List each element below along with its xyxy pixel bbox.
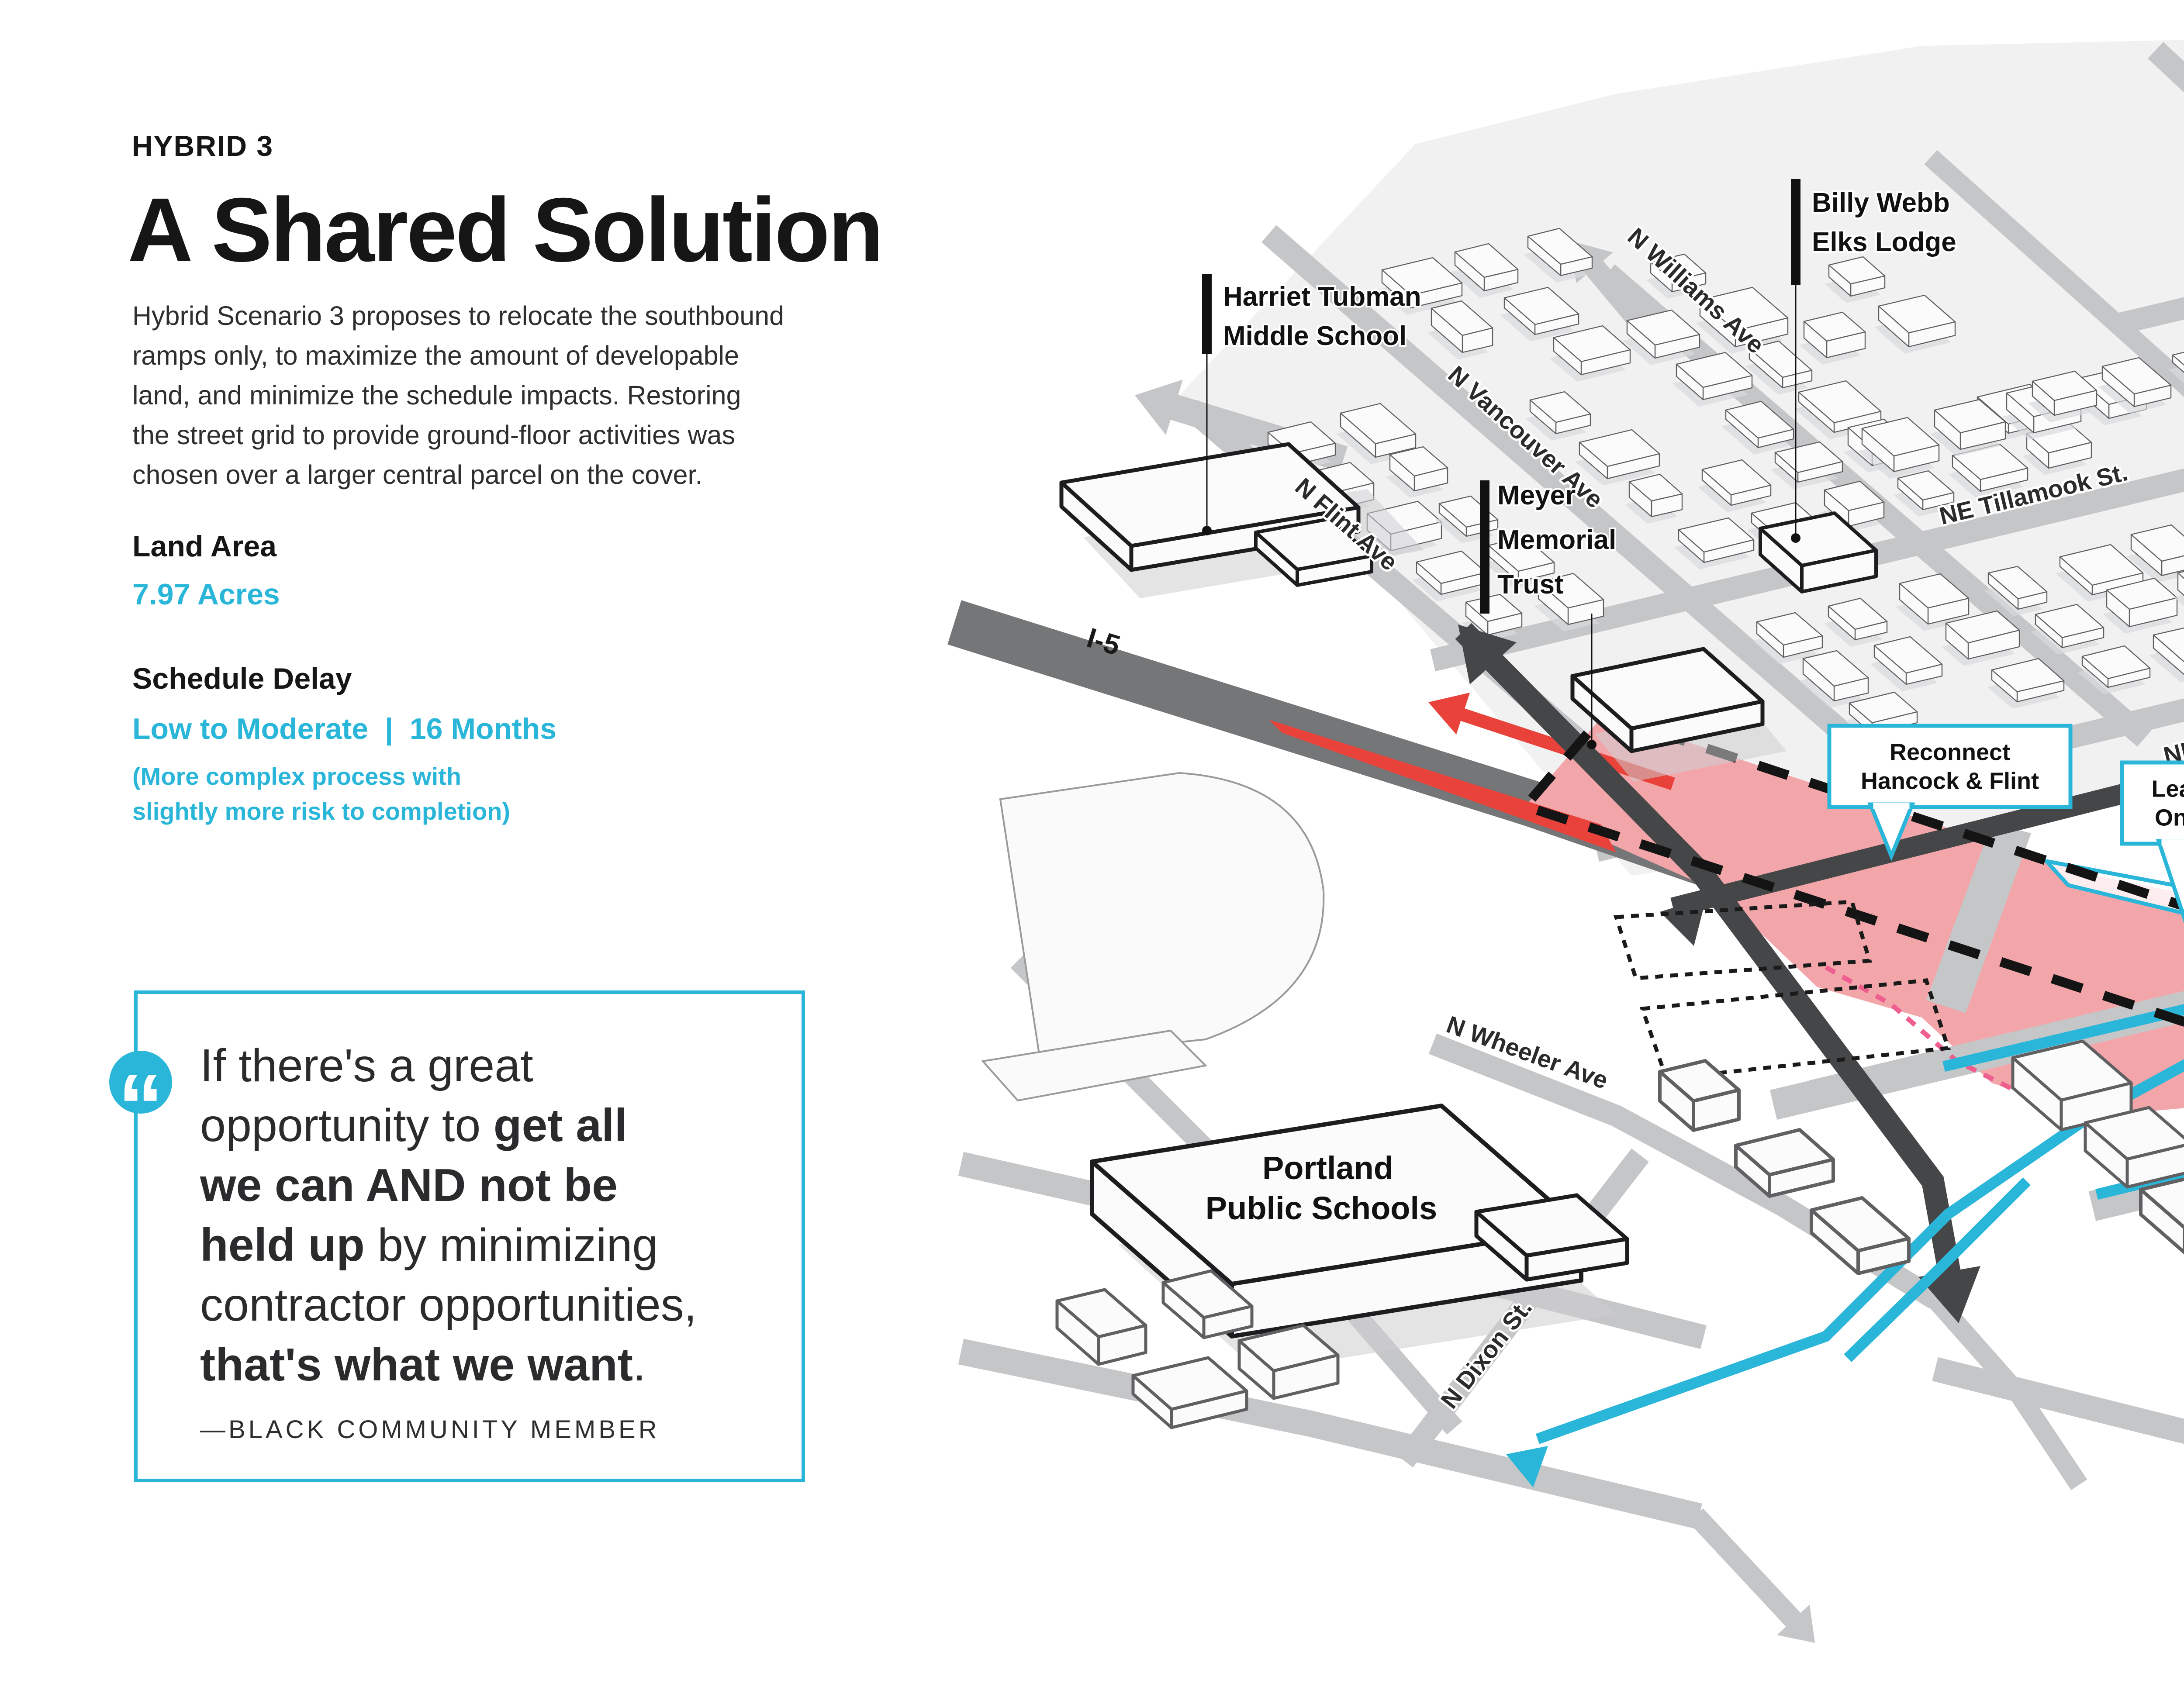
- svg-text:Reconnect: Reconnect: [1890, 739, 2010, 765]
- svg-text:Billy Webb: Billy Webb: [1812, 188, 1950, 218]
- svg-text:Harriet Tubman: Harriet Tubman: [1223, 282, 1421, 312]
- svg-text:Hancock & Flint: Hancock & Flint: [1861, 768, 2039, 794]
- svg-text:Meyer: Meyer: [1497, 480, 1576, 511]
- svg-text:Memorial: Memorial: [1497, 525, 1616, 555]
- svg-text:Public Schools: Public Schools: [1206, 1190, 1437, 1226]
- svg-text:Leave Northbound: Leave Northbound: [2151, 776, 2184, 802]
- svg-text:Middle School: Middle School: [1223, 321, 1406, 351]
- svg-text:Elks Lodge: Elks Lodge: [1812, 227, 1956, 257]
- svg-text:Portland: Portland: [1262, 1150, 1393, 1186]
- svg-text:Trust: Trust: [1497, 569, 1564, 600]
- svg-text:On-Ramp in Place: On-Ramp in Place: [2155, 804, 2184, 831]
